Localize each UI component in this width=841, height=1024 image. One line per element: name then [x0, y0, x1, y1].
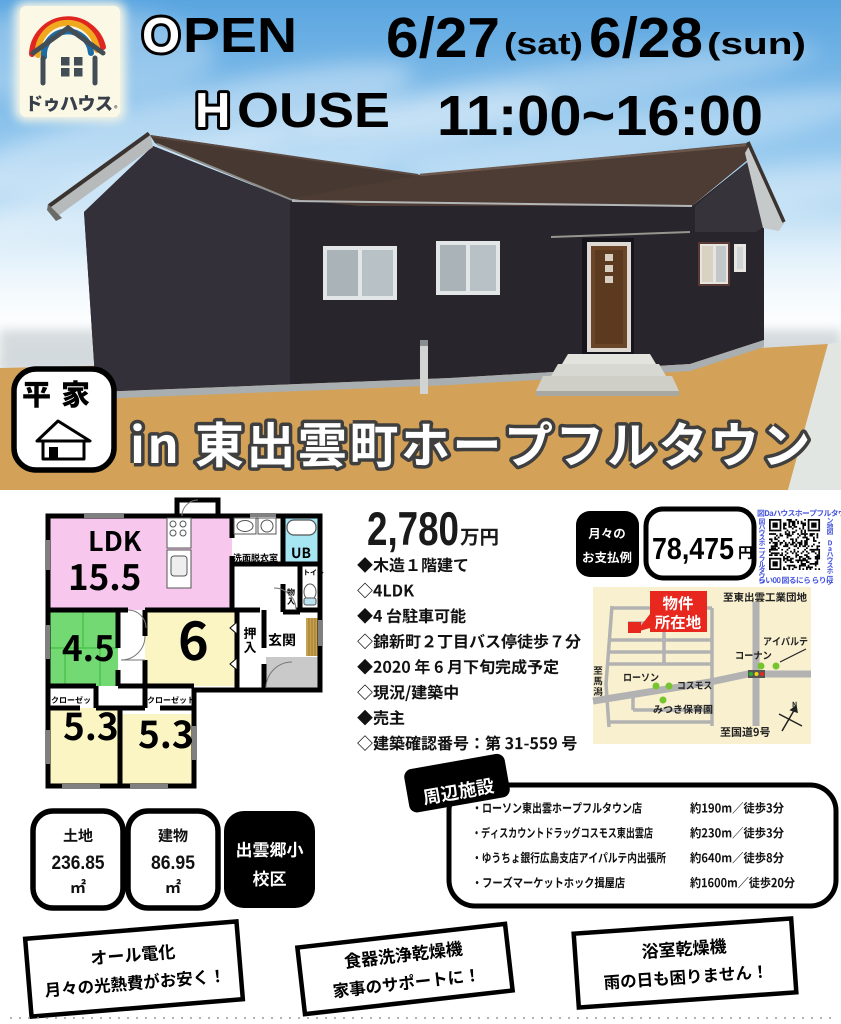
svg-text:86.95: 86.95 — [151, 852, 195, 874]
svg-text:(sun): (sun) — [707, 26, 806, 61]
svg-text:PEN: PEN — [183, 9, 297, 63]
svg-text:H: H — [195, 84, 230, 138]
svg-text:OUSE: OUSE — [237, 84, 390, 138]
svg-text:2,780: 2,780 — [367, 502, 459, 555]
svg-text:236.85: 236.85 — [52, 852, 105, 874]
svg-text:11:00~16:00: 11:00~16:00 — [437, 84, 763, 148]
svg-text:78,475: 78,475 — [652, 531, 734, 566]
svg-text:6/28: 6/28 — [589, 6, 703, 70]
svg-text:6/27: 6/27 — [386, 6, 500, 70]
svg-text:O: O — [142, 9, 180, 63]
svg-text:(sat): (sat) — [504, 26, 583, 61]
